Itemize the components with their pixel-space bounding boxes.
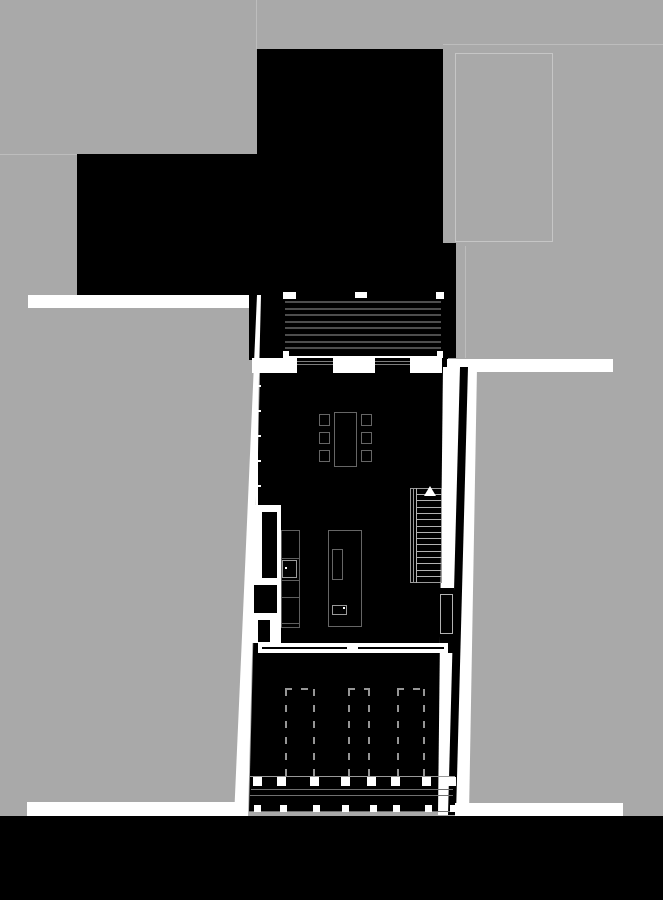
roof-stripe [285, 347, 441, 349]
neighbor-building-outline [455, 53, 553, 242]
stair-tread [417, 563, 442, 564]
window-glazing-panel [297, 358, 333, 373]
railing-post-small [342, 805, 349, 812]
stair-tread [417, 507, 442, 508]
stair-tread [417, 557, 442, 558]
roof-stripe [285, 314, 441, 316]
wall-tick [257, 485, 261, 487]
roof-corner-mark-ne [436, 292, 444, 299]
dining-table [334, 412, 357, 467]
wall-tick [257, 435, 261, 437]
railing-post-small [450, 805, 457, 812]
counter-divider-2 [281, 580, 300, 581]
stair-stringer-1 [413, 488, 414, 583]
kitchen-counter [281, 530, 300, 628]
wall-tick [257, 385, 261, 387]
roof-stripe [285, 334, 441, 336]
railing-post-small [313, 805, 320, 812]
roof-corner-mark-nw [283, 292, 296, 299]
dining-chair [361, 414, 372, 426]
dining-chair [361, 432, 372, 444]
wall-tick [257, 410, 261, 412]
railing-post [422, 777, 431, 786]
railing-post [391, 777, 400, 786]
railing-post [310, 777, 319, 786]
deck-edge-line-2 [251, 789, 453, 790]
glazing-line [375, 361, 410, 362]
closet-box [262, 512, 277, 578]
parcel-line-northeast [443, 44, 663, 45]
dining-chair [319, 450, 330, 462]
counter-sink-faucet-dot [285, 567, 287, 569]
sidewalk-northwest [28, 295, 250, 308]
stall-dashed-right [423, 689, 425, 778]
floorplan-canvas [0, 0, 663, 900]
stair-tread [417, 551, 442, 552]
railing-post-small [370, 805, 377, 812]
railing-post [367, 777, 376, 786]
stair-tread [417, 576, 442, 577]
stair-direction-arrow [424, 486, 436, 496]
roof-stripe [285, 341, 441, 343]
counter-divider-3 [281, 597, 300, 598]
railing-post [277, 777, 286, 786]
wc-fixture-box [440, 594, 453, 634]
storage-box [254, 585, 277, 613]
stair-tread [417, 519, 442, 520]
stair-tread [417, 538, 442, 539]
stall-dashed-right [313, 689, 315, 778]
dining-chair [361, 450, 372, 462]
stall-dashed-right [368, 689, 370, 778]
entry-door-leaf [258, 620, 270, 642]
counter-divider-1 [281, 558, 300, 559]
parcel-line-north [256, 0, 257, 49]
stall-dashed-left [348, 689, 350, 778]
roof-stripe [285, 327, 441, 329]
counter-sink [282, 560, 297, 578]
parcel-line-east [465, 246, 466, 358]
stall-dashed-top [285, 688, 315, 690]
stall-dashed-left [397, 689, 399, 778]
south-wall-line-east [358, 647, 444, 649]
stall-dashed-top [397, 688, 425, 690]
roof-stripe [285, 308, 441, 310]
south-wall-line-west [262, 647, 347, 649]
stair-tread [417, 526, 442, 527]
roof-stripe [285, 301, 441, 303]
railing-post [447, 777, 456, 786]
glazing-line [297, 361, 333, 362]
stair-tread [417, 500, 442, 501]
railing-post-small [393, 805, 400, 812]
glazing-line [375, 364, 410, 365]
deck-edge-line-3 [250, 795, 453, 796]
building-mass-west [77, 154, 257, 295]
railing-post [341, 777, 350, 786]
railing-post [253, 777, 262, 786]
railing-post-small [280, 805, 287, 812]
dining-chair [319, 432, 330, 444]
stair-tread [417, 570, 442, 571]
counter-divider-4 [281, 623, 300, 624]
building-mass-north [257, 49, 443, 295]
island-cooktop [332, 549, 343, 580]
stair-tread [417, 532, 442, 533]
roof-corner-mark-n [355, 292, 367, 298]
street-band-south [0, 816, 663, 900]
glazing-line [297, 364, 333, 365]
stall-dashed-left [285, 689, 287, 778]
wall-tick [257, 460, 261, 462]
window-band-north [252, 358, 448, 373]
railing-post-small [425, 805, 432, 812]
island-sink-faucet-dot [343, 607, 345, 609]
window-glazing-panel [375, 358, 410, 373]
parcel-line-west [0, 154, 77, 155]
railing-post-small [254, 805, 261, 812]
building-mass-west-strip [249, 295, 283, 360]
stair-tread [417, 544, 442, 545]
stall-dashed-top [348, 688, 370, 690]
building-mass-east-strip [443, 243, 456, 358]
dining-chair [319, 414, 330, 426]
roof-stripe [285, 321, 441, 323]
stair-tread [417, 513, 442, 514]
